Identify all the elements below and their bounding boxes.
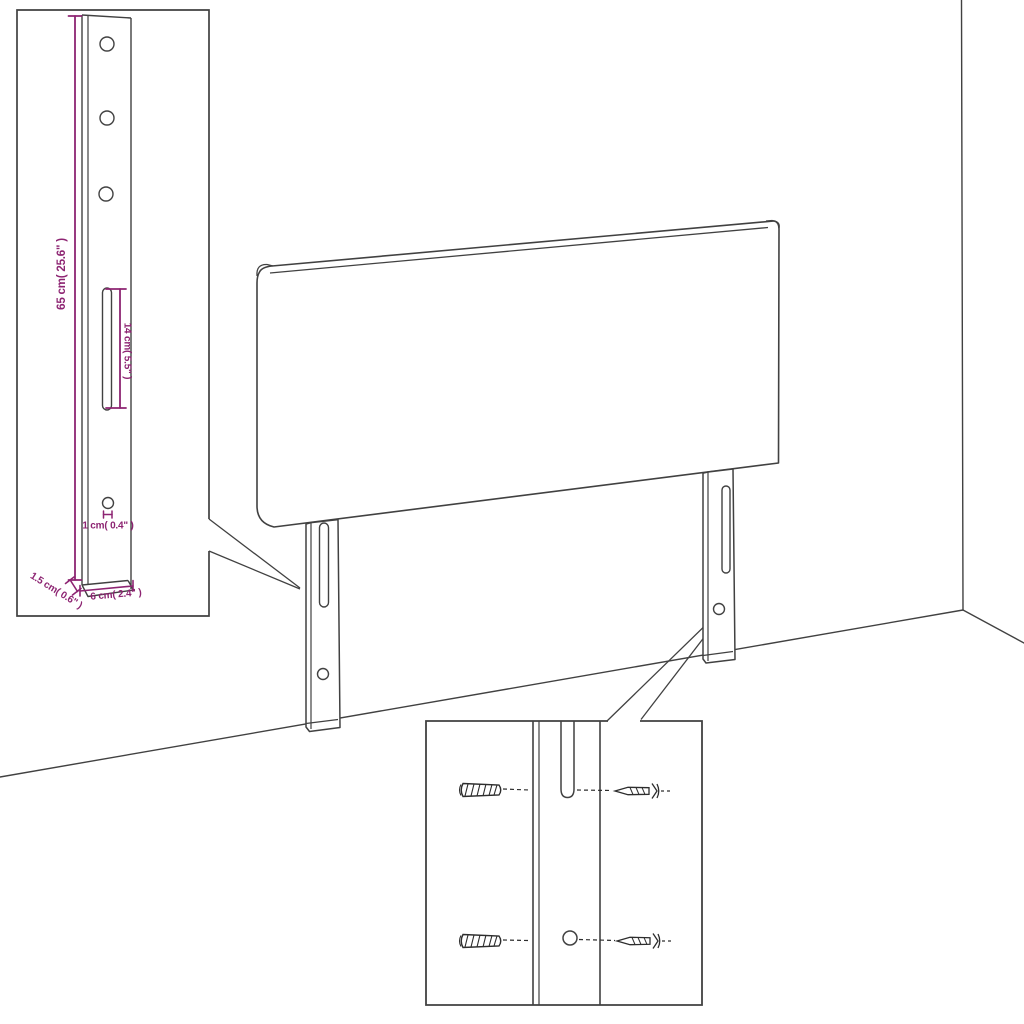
headboard-left-leg [306, 520, 340, 732]
dim-line-hole-diameter [104, 511, 113, 518]
dimension-label-slot-length: 14 cm( 5.5" ) [122, 323, 133, 380]
dimension-annotations [66, 16, 134, 596]
bracket-top-edge [82, 15, 131, 18]
floor-line-right [963, 610, 1024, 643]
headboard-dimension-diagram: 65 cm( 25.6" ) 14 cm( 5.5" ) 1 cm( 0.4" … [0, 0, 1024, 1024]
guide-dash-hole-bottom [579, 940, 615, 941]
bracket-inset-callout-lines [209, 519, 300, 589]
floor-line-left [0, 610, 963, 777]
dimension-label-leg-height: 65 cm( 25.6" ) [56, 238, 68, 310]
mounting-slot [561, 721, 574, 798]
wall-plug-icon [460, 935, 501, 948]
headboard-right-leg [703, 469, 735, 663]
headboard-panel [257, 221, 779, 528]
bracket-drawing [82, 15, 134, 597]
guide-dash-plug-bottom [503, 940, 528, 941]
dim-line-leg-height [69, 16, 82, 580]
screw-hole [563, 931, 577, 945]
guide-dash-plug-top [503, 789, 529, 790]
dimension-label-hole-diameter: 1 cm( 0.4" ) [82, 521, 133, 532]
bracket-hole-3 [99, 187, 113, 201]
wall-plug-icon [460, 784, 501, 797]
bracket-bottom-edge [82, 581, 128, 586]
guide-dash-slot-top [577, 790, 612, 791]
leg-strip-enlarged [533, 721, 600, 1005]
diagram-drawing [0, 0, 1024, 1024]
bracket-hole-2 [100, 111, 114, 125]
hardware-inset-border [426, 721, 702, 1005]
screw-icon [617, 934, 674, 949]
bracket-anchor-hole [103, 498, 114, 509]
wall-corner-line [962, 0, 964, 610]
hardware-inset [426, 721, 702, 1005]
bracket-hole-1 [100, 37, 114, 51]
screw-icon [615, 784, 673, 799]
bracket-slot [103, 288, 112, 410]
